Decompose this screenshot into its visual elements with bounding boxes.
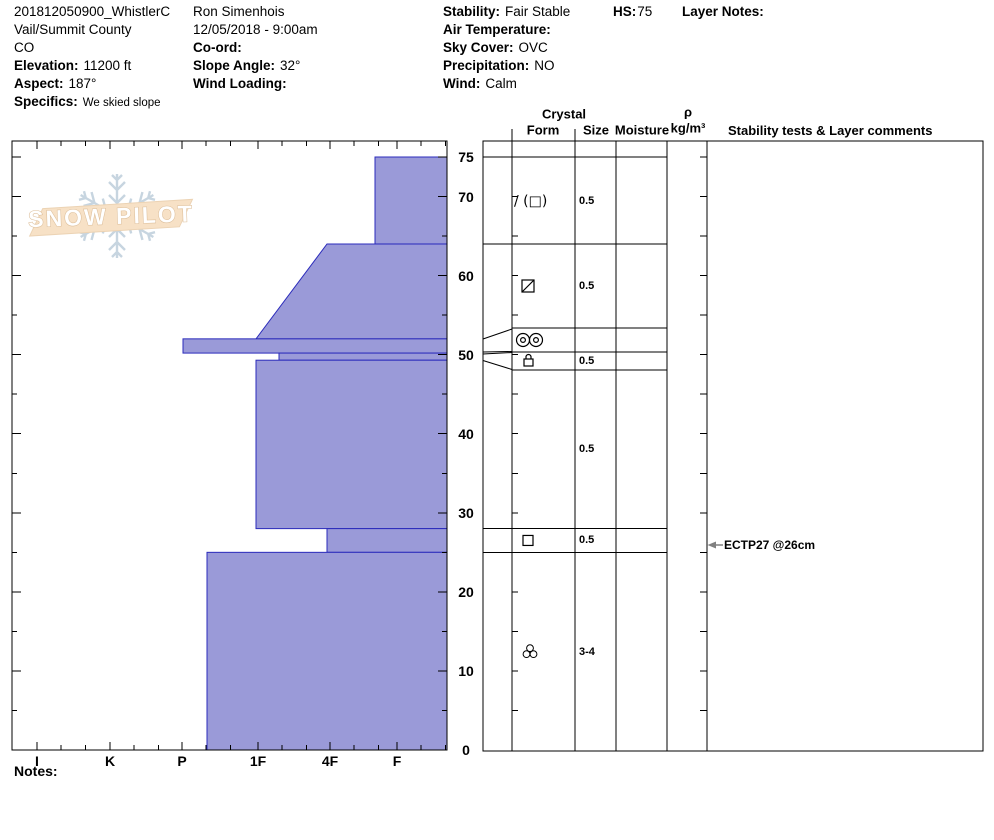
layer-bar (279, 353, 447, 360)
crystal-form-square-diagonal-icon (522, 280, 534, 292)
grain-size-value: 0.5 (579, 443, 594, 455)
depth-axis-label: 75 (458, 149, 474, 165)
ect-arrow-icon (708, 542, 724, 549)
depth-axis-label: 30 (458, 505, 474, 521)
svg-text:/ (□): / (□) (514, 194, 547, 210)
hardness-axis-label: P (177, 753, 186, 769)
grain-size-value: 3-4 (579, 646, 595, 658)
table-header-size: Size (583, 123, 609, 138)
crystal-form-square-icon (523, 535, 533, 545)
depth-axis-label: 40 (458, 426, 474, 442)
table-header-stability-comments: Stability tests & Layer comments (728, 123, 932, 138)
depth-axis-label: 50 (458, 347, 474, 363)
hardness-axis-label: 1F (250, 753, 266, 769)
layer-bar (375, 157, 447, 244)
table-header-density-unit: kg/m³ (671, 121, 706, 136)
table-header-form: Form (527, 123, 560, 138)
crystal-form-symbols: / (□) (514, 194, 547, 658)
crystal-form-slash-paren-square-icon: / (□) (514, 194, 547, 210)
table-header-moisture: Moisture (615, 123, 669, 138)
grain-size-value: 0.5 (579, 355, 594, 367)
layer-table-grid (483, 129, 983, 751)
leader-lines (483, 329, 512, 370)
table-header-density-rho: ρ (684, 105, 692, 120)
depth-axis-label: 70 (458, 189, 474, 205)
table-header-crystal: Crystal (542, 107, 586, 122)
grain-size-value: 0.5 (579, 534, 594, 546)
notes-field: Notes: (14, 763, 58, 779)
table-depth-ticks (512, 157, 707, 710)
crystal-form-cluster-icon (523, 645, 537, 658)
hardness-axis-label: 4F (322, 753, 338, 769)
layer-bar (256, 360, 447, 528)
depth-axis-label: 60 (458, 268, 474, 284)
layer-bar (183, 339, 447, 353)
layer-bar (327, 529, 447, 553)
snowpilot-logo: SNOW PILOT (28, 174, 195, 258)
notes-label: Notes: (14, 763, 58, 779)
hardness-axis-label: F (393, 753, 402, 769)
depth-axis-label: 0 (462, 742, 470, 758)
grain-size-value: 0.5 (579, 280, 594, 292)
depth-axis-label: 10 (458, 663, 474, 679)
hardness-axis-label: K (105, 753, 115, 769)
grain-size-value: 0.5 (579, 195, 594, 207)
depth-axis-label: 20 (458, 584, 474, 600)
layer-bar (256, 244, 447, 339)
crystal-form-double-circles-icon (517, 334, 543, 347)
crystal-form-lock-icon (524, 355, 533, 367)
layer-bar (207, 552, 447, 750)
stability-test-annotation: ECTP27 @26cm (724, 538, 815, 552)
hardness-bars (183, 157, 447, 750)
